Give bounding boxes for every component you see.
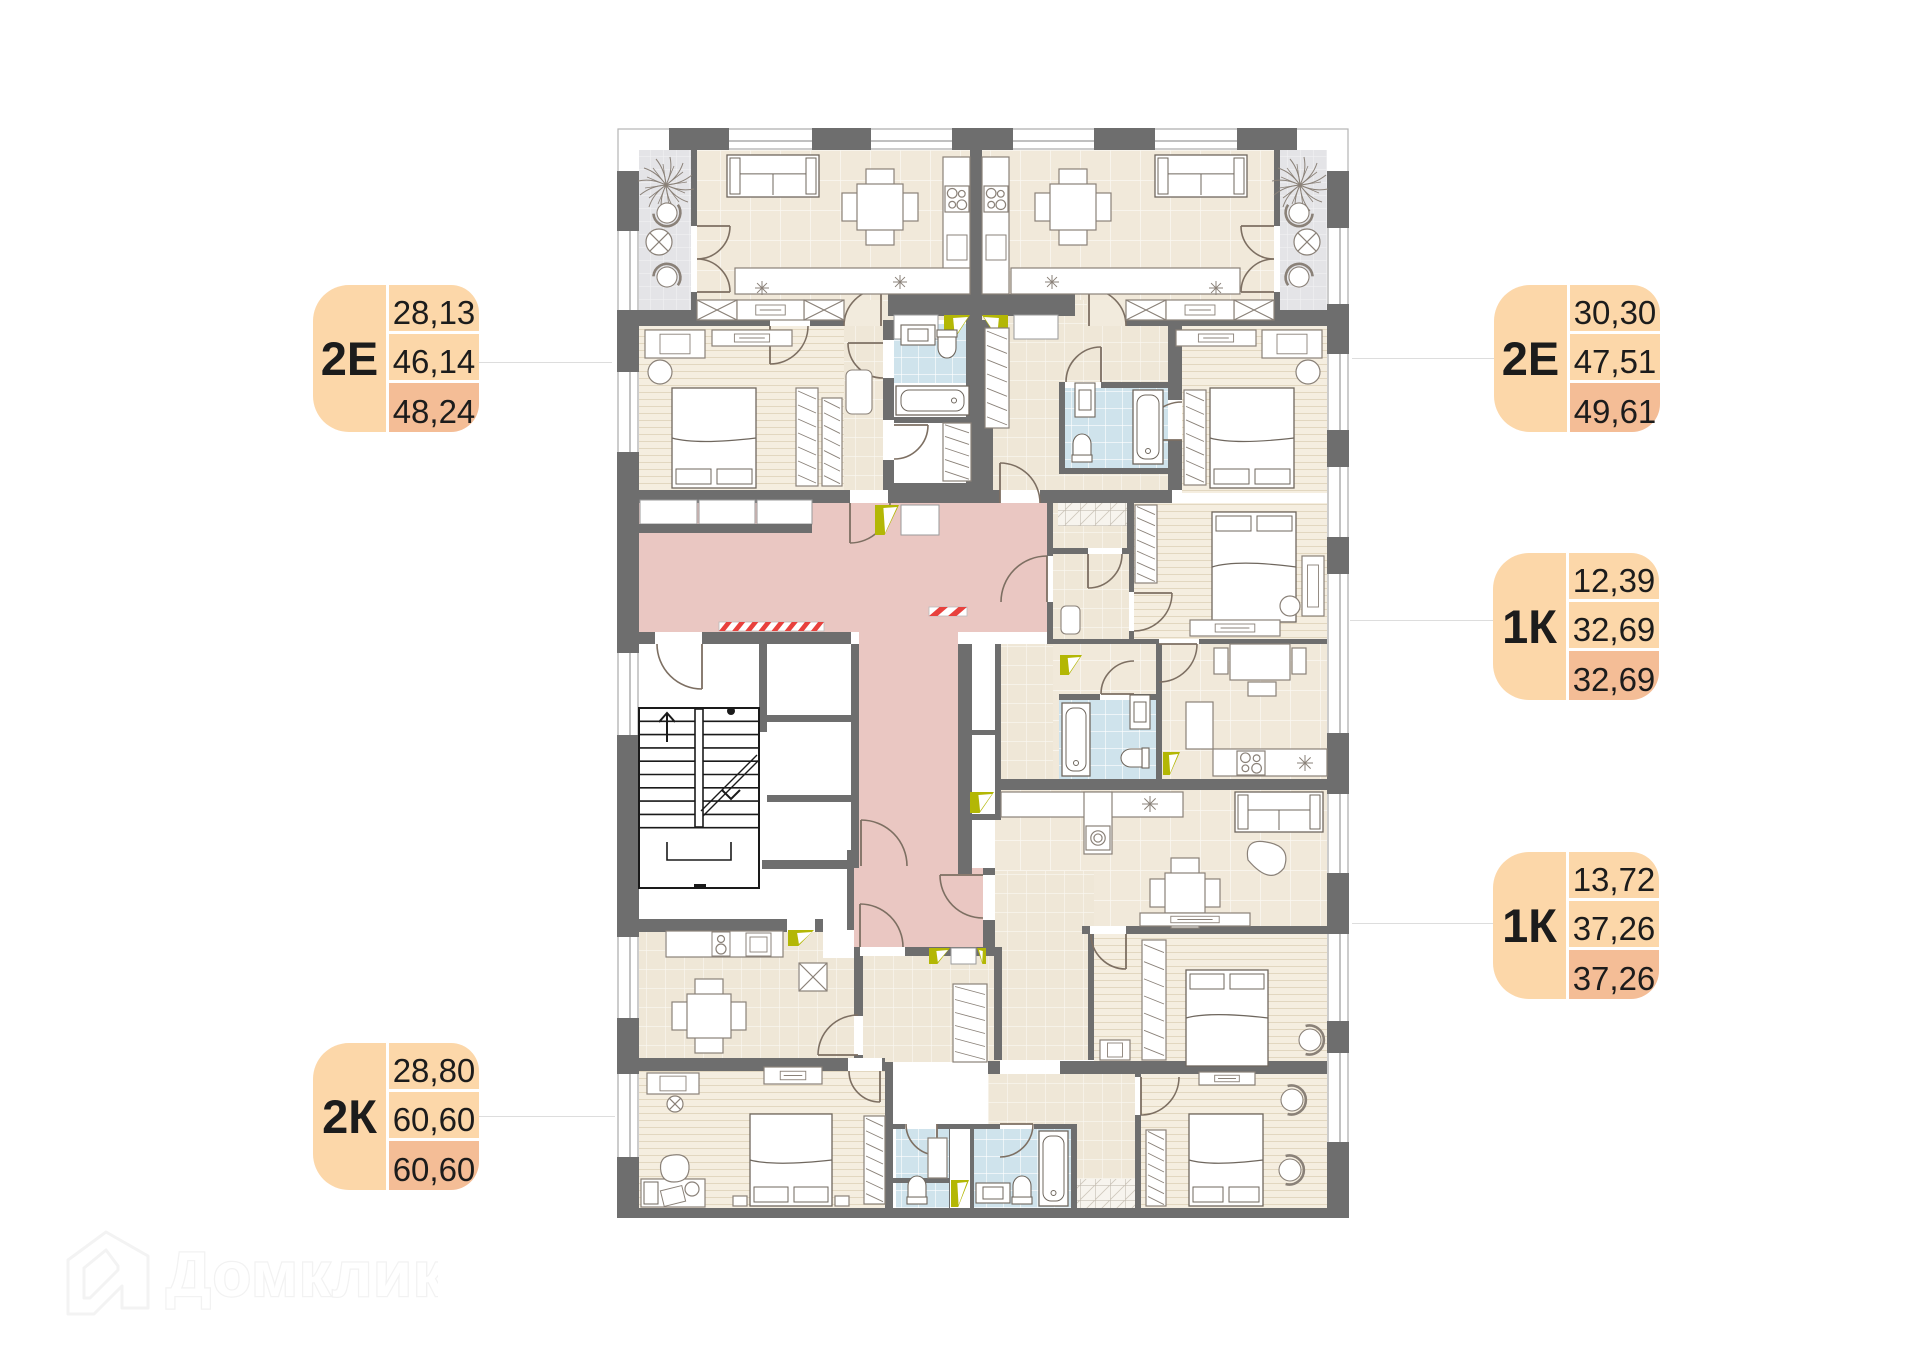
svg-text:Домклик: Домклик xyxy=(166,1240,438,1310)
